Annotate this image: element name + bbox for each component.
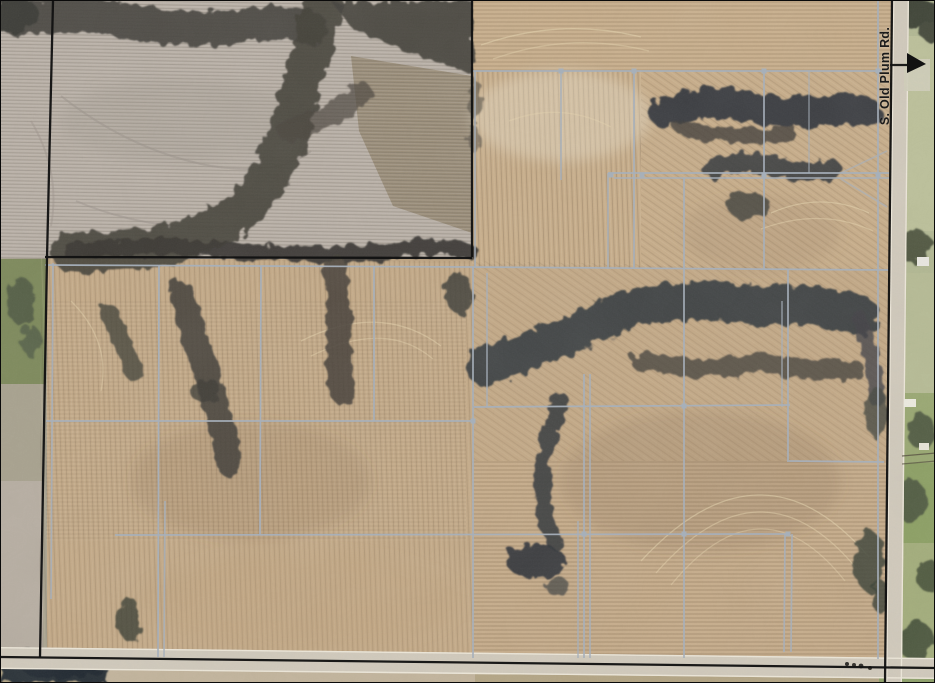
tile-line <box>472 267 890 270</box>
flow-arrow <box>890 53 926 73</box>
tile-junction <box>682 404 687 409</box>
tile-junction <box>609 173 614 178</box>
tile-junction <box>786 532 791 537</box>
tile-line <box>164 501 165 657</box>
tile-junction <box>632 69 637 74</box>
tile-line <box>841 179 887 207</box>
boundary-line <box>1 657 935 668</box>
tile-line <box>115 534 789 535</box>
tile-junction <box>582 532 587 537</box>
boundary-line <box>40 258 47 657</box>
tile-junction <box>762 69 767 74</box>
tile-junction <box>682 532 687 537</box>
map-viewport[interactable]: S. Old Plum Rd. <box>0 0 935 683</box>
tile-junction <box>876 173 881 178</box>
tile-line <box>791 534 792 652</box>
tile-line <box>474 405 790 407</box>
tile-line <box>260 266 261 535</box>
tile-lines-layer <box>45 1 890 659</box>
annotation-overlay <box>1 1 935 683</box>
tile-junction <box>640 173 645 178</box>
road-label: S. Old Plum Rd. <box>878 9 892 143</box>
tile-line <box>784 534 785 652</box>
tile-junction <box>762 173 767 178</box>
tile-junction <box>559 69 564 74</box>
tile-line <box>45 265 472 267</box>
boundary-line <box>47 1 53 258</box>
boundary-lines-layer <box>1 1 935 683</box>
tile-line <box>158 266 159 657</box>
arrow-head <box>907 53 926 73</box>
tile-line <box>789 461 884 462</box>
tile-line <box>841 151 887 173</box>
tile-junctions-layer <box>471 69 881 537</box>
boundary-line <box>45 257 472 258</box>
tile-line <box>51 263 53 599</box>
tile-junction <box>471 419 476 424</box>
